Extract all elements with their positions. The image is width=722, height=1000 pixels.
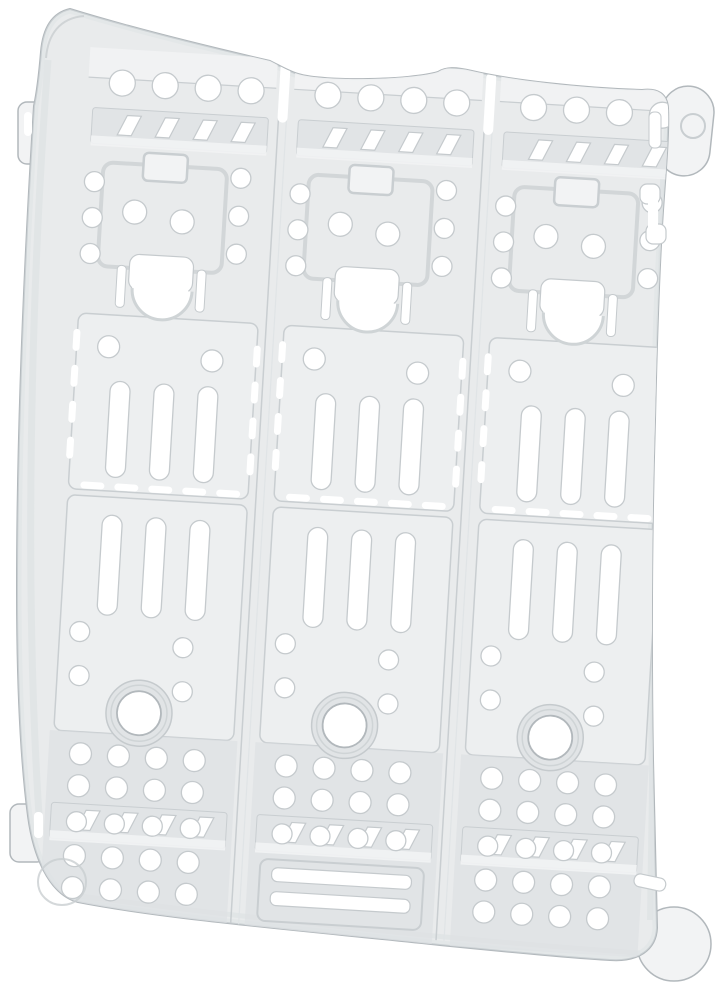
product-illustration: [0, 0, 722, 1000]
panel-render-svg: [0, 0, 722, 1000]
